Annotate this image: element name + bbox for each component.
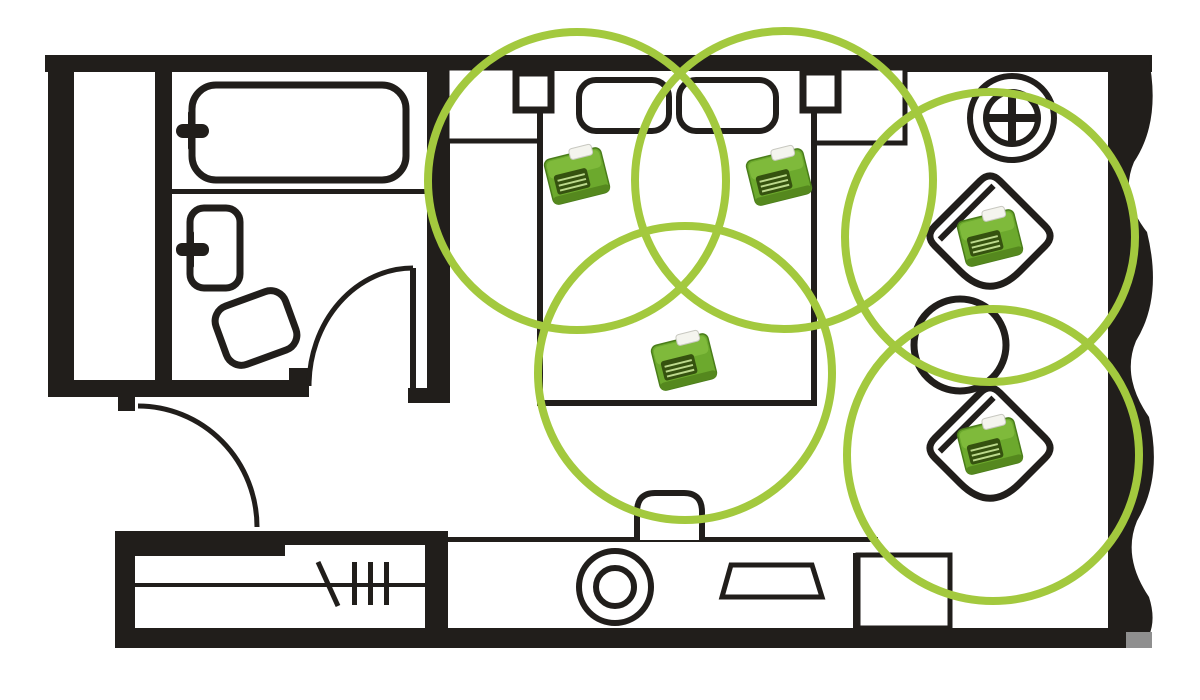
- wall-bath-bottom: [48, 380, 309, 397]
- hanger-tick-1-icon: [352, 562, 357, 605]
- nightstand-right: [803, 72, 838, 110]
- stool-outer-icon: [579, 551, 651, 623]
- sink-faucet-stem-icon: [188, 231, 194, 268]
- floor-lamp-cross-v-icon: [1008, 95, 1016, 141]
- wardrobe-rod: [135, 583, 425, 587]
- wall-bath-door-jamb: [289, 368, 309, 397]
- hanger-tick-2-icon: [368, 562, 373, 605]
- floorplan-canvas: [0, 0, 1200, 700]
- wall-closet-inner: [155, 70, 172, 397]
- bathroom-divider-line: [172, 189, 428, 194]
- wall-wardrobe-top-thin: [285, 531, 433, 545]
- bathroom-door-leaf: [410, 268, 416, 388]
- bathtub: [192, 85, 406, 180]
- wall-bottom-end-shadow: [1126, 632, 1152, 648]
- tv-icon: [722, 565, 822, 597]
- wall-left: [48, 55, 74, 397]
- wall-wardrobe-top-thick: [115, 531, 285, 556]
- hanger-tick-3-icon: [384, 562, 389, 605]
- wall-entry-door-hinge: [118, 396, 135, 411]
- nightstand-left: [516, 73, 551, 110]
- wall-bath-bedroom-foot: [408, 388, 450, 403]
- floorplan-svg: [0, 0, 1200, 700]
- wall-bottom: [115, 628, 1145, 648]
- bathtub-faucet-stem-icon: [188, 111, 194, 150]
